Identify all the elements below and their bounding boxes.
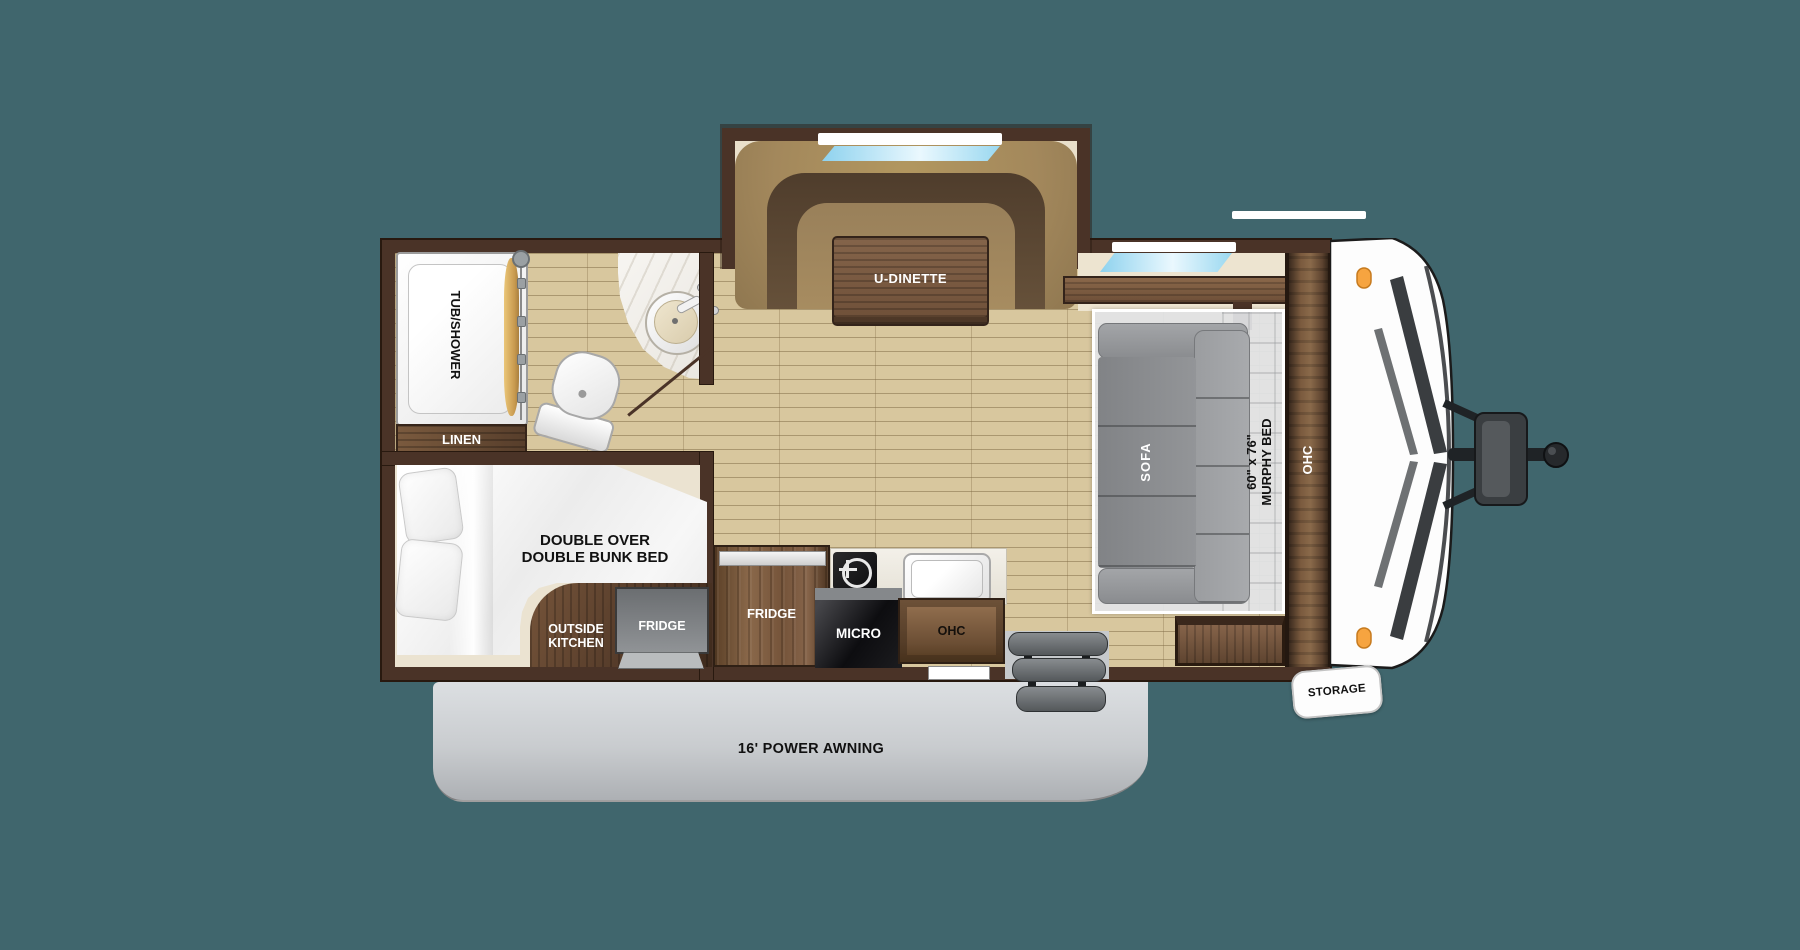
curtain-hook bbox=[517, 316, 526, 327]
front-ohc-label: OHC bbox=[1300, 425, 1316, 495]
cooktop bbox=[833, 552, 877, 590]
outside-kitchen-fridge-vent bbox=[618, 652, 704, 669]
tongue-jack-knob-highlight bbox=[1548, 447, 1556, 455]
clearance-light-top bbox=[1357, 268, 1371, 288]
floorplan-canvas: 16' POWER AWNING TUB/SHOWER LINEN DOUBLE… bbox=[0, 0, 1800, 950]
kitchen-overhead-cabinet: OHC bbox=[898, 598, 1005, 664]
entry-step bbox=[1016, 686, 1106, 712]
pillow bbox=[394, 538, 464, 622]
fridge-top-counter bbox=[719, 551, 826, 566]
bunk-bed-label: DOUBLE OVER DOUBLE BUNK BED bbox=[480, 532, 710, 567]
murphy-bed-name: MURPHY BED bbox=[1260, 382, 1275, 542]
offdoor-window-marker bbox=[1232, 211, 1366, 219]
outside-fridge-label: FRIDGE bbox=[617, 619, 707, 633]
bunk-bed-label-line2: DOUBLE BUNK BED bbox=[480, 549, 710, 566]
curtain-hook bbox=[517, 278, 526, 289]
tub-shower-label: TUB/SHOWER bbox=[445, 255, 465, 415]
murphy-bed-size: 60" x 76" bbox=[1245, 382, 1260, 542]
pillow bbox=[397, 466, 464, 545]
u-dinette-label: U-DINETTE bbox=[834, 272, 987, 287]
front-cap-and-hitch bbox=[1330, 238, 1580, 678]
entry-step bbox=[1008, 632, 1108, 656]
clearance-light-bottom bbox=[1357, 628, 1371, 648]
outside-kitchen-label: OUTSIDE KITCHEN bbox=[532, 622, 620, 651]
sofa-label: SOFA bbox=[1138, 417, 1154, 507]
outside-kitchen-label-line1: OUTSIDE bbox=[532, 622, 620, 636]
bedroom-window bbox=[1100, 253, 1232, 272]
sofa-backrest bbox=[1194, 330, 1250, 604]
burner-cross-icon bbox=[846, 560, 849, 578]
murphy-bed-label: 60" x 76" MURPHY BED bbox=[1245, 382, 1279, 542]
bathroom-wall bbox=[700, 253, 713, 384]
entry-door bbox=[928, 666, 990, 680]
headboard-shelf bbox=[1063, 276, 1290, 304]
storage-label: STORAGE bbox=[1294, 681, 1381, 702]
kitchen-sink-basin bbox=[911, 560, 983, 598]
bedroom-window-sill bbox=[1112, 242, 1236, 252]
slideout-window-sill bbox=[818, 133, 1002, 145]
u-dinette-table: U-DINETTE bbox=[832, 236, 989, 326]
bath-bunk-divider-wall bbox=[382, 452, 713, 465]
fridge-cabinet: FRIDGE bbox=[713, 545, 830, 667]
microwave-label: MICRO bbox=[815, 626, 902, 642]
front-storage-door: STORAGE bbox=[1290, 664, 1384, 720]
linen-label: LINEN bbox=[398, 426, 525, 453]
outside-kitchen-fridge: FRIDGE bbox=[615, 587, 709, 654]
entry-step bbox=[1012, 658, 1106, 682]
shower-head-icon bbox=[512, 250, 530, 268]
bunk-bed-label-line1: DOUBLE OVER bbox=[480, 532, 710, 549]
propane-cover-highlight bbox=[1482, 421, 1510, 497]
slideout-window bbox=[822, 146, 1000, 161]
bedroom-foot-cabinet bbox=[1175, 616, 1285, 666]
fridge-label: FRIDGE bbox=[715, 607, 828, 622]
curtain-hook bbox=[517, 392, 526, 403]
power-awning-label: 16' POWER AWNING bbox=[681, 741, 941, 758]
outside-kitchen-label-line2: KITCHEN bbox=[532, 636, 620, 650]
kitchen-ohc-label: OHC bbox=[900, 624, 1003, 638]
microwave: MICRO bbox=[815, 588, 902, 668]
tongue-jack-knob bbox=[1544, 443, 1568, 467]
curtain-hook bbox=[517, 354, 526, 365]
sink-drain-icon bbox=[672, 318, 678, 324]
